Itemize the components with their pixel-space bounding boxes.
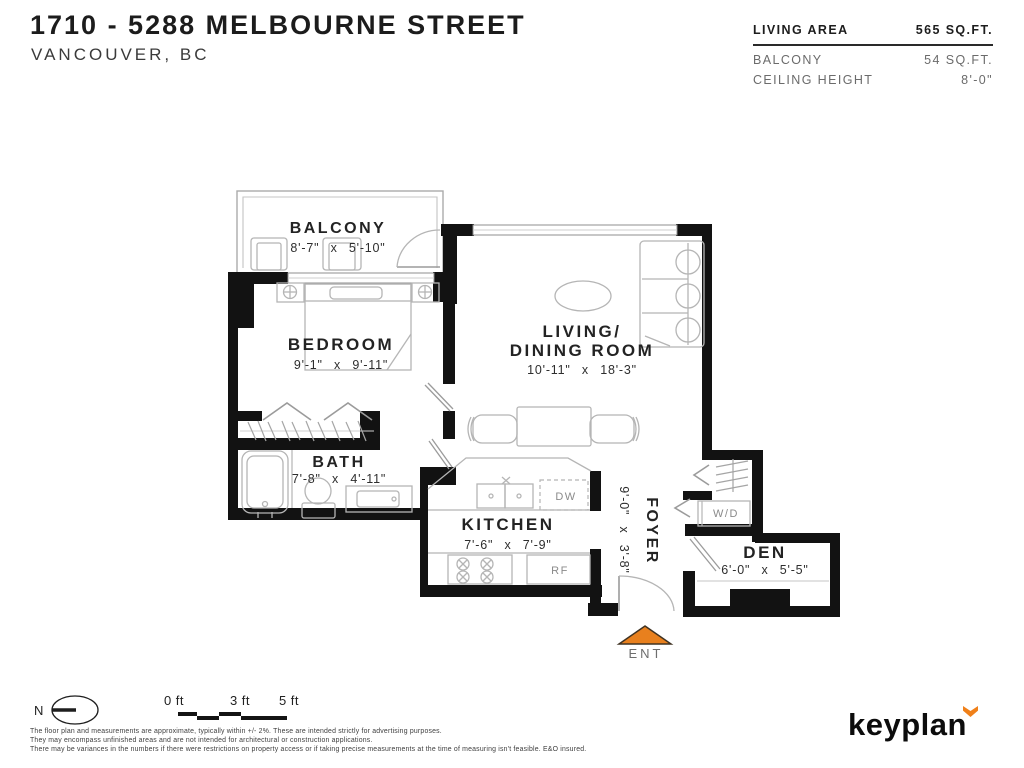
refrigerator-label: RF (551, 565, 569, 577)
floor-plan-drawing: BALCONY 8'-7" x 5'-10" BEDROOM 9'-1" x 9… (0, 0, 1024, 768)
scale-bar: 0 ft 3 ft 5 ft (164, 693, 299, 720)
scale-0ft: 0 ft (164, 693, 184, 708)
scale-5ft: 5 ft (279, 693, 299, 708)
disclaimer-line-1: The floor plan and measurements are appr… (30, 727, 690, 736)
foyer-closet (694, 459, 748, 492)
bath-door (429, 439, 452, 469)
entry-door (619, 576, 674, 611)
living-label-line1: LIVING/ (543, 322, 622, 341)
kitchen-dims: 7'-6" x 7'-9" (464, 538, 551, 552)
foyer-label: FOYER (643, 497, 660, 565)
bathtub (242, 451, 288, 518)
coffee-table (555, 281, 611, 311)
dining-table (468, 407, 639, 446)
living-label-line2: DINING ROOM (510, 341, 655, 360)
scale-3ft: 3 ft (230, 693, 250, 708)
den-label: DEN (743, 543, 786, 562)
disclaimer-line-2: They may encompass unfinished areas and … (30, 736, 690, 745)
bedroom-dims: 9'-1" x 9'-11" (294, 358, 388, 372)
balcony-dims: 8'-7" x 5'-10" (290, 241, 385, 255)
bedroom-label: BEDROOM (288, 335, 394, 354)
washer-dryer-label: W/D (713, 508, 739, 520)
entry-arrow-icon (619, 626, 671, 644)
disclaimer-line-3: There may be variances in the numbers if… (30, 745, 690, 754)
entry-label: ENT (629, 646, 664, 661)
keyplan-logo: keyplan (848, 707, 967, 743)
bath-label: BATH (312, 454, 365, 471)
north-indicator-icon: N (34, 696, 98, 724)
bath-dims: 7'-8" x 4'-11" (292, 472, 386, 486)
bedroom-closet (240, 403, 374, 441)
disclaimer-text: The floor plan and measurements are appr… (30, 727, 690, 754)
north-label: N (34, 703, 44, 718)
den-dims: 6'-0" x 5'-5" (721, 563, 808, 577)
dishwasher-label: DW (555, 491, 576, 503)
balcony-label: BALCONY (290, 220, 387, 237)
kitchen-label: KITCHEN (461, 515, 554, 534)
sofa (640, 241, 704, 347)
living-dims: 10'-11" x 18'-3" (527, 363, 637, 377)
foyer-dims: 9'-0" x 3'-8" (617, 486, 631, 573)
floor-plan-page: 1710 - 5288 MELBOURNE STREET VANCOUVER, … (0, 0, 1024, 768)
stove-burners-icon (457, 558, 493, 583)
balcony-door (397, 230, 440, 267)
bedroom-door (425, 383, 453, 411)
